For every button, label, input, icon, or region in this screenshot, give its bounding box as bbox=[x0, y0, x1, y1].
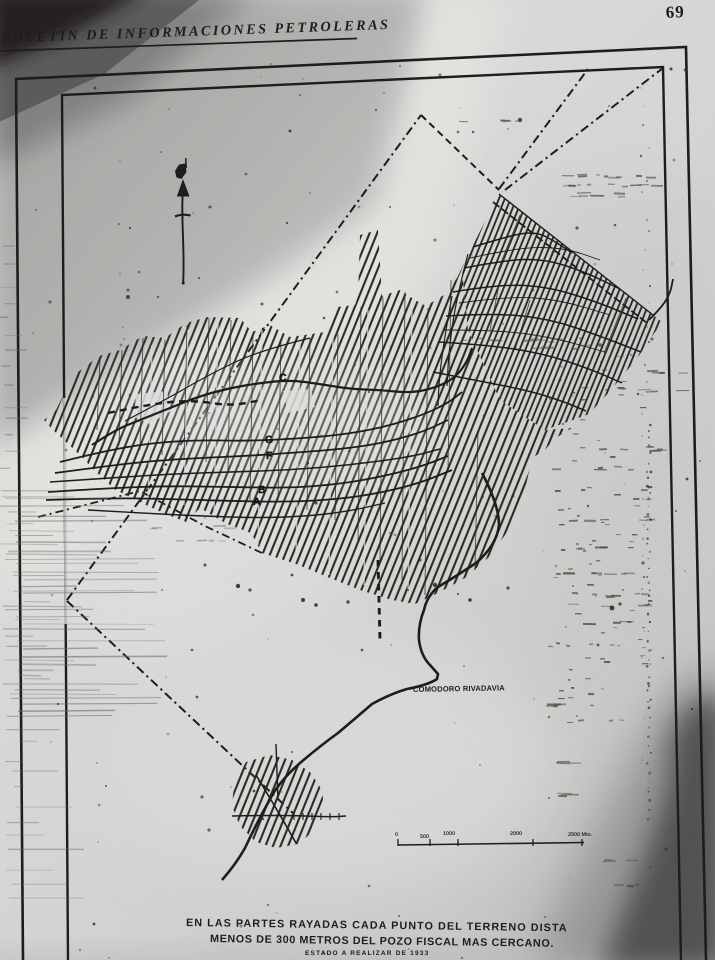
svg-text:1000: 1000 bbox=[443, 831, 455, 837]
svg-text:500: 500 bbox=[420, 834, 429, 840]
svg-text:B: B bbox=[258, 484, 266, 496]
svg-text:COMODORO RIVADAVIA: COMODORO RIVADAVIA bbox=[413, 683, 505, 694]
svg-text:C: C bbox=[279, 372, 287, 384]
svg-text:2500 Mts.: 2500 Mts. bbox=[568, 832, 593, 838]
svg-text:G: G bbox=[265, 434, 273, 446]
svg-text:2000: 2000 bbox=[510, 831, 522, 837]
svg-text:0: 0 bbox=[395, 832, 398, 838]
svg-text:69: 69 bbox=[665, 2, 685, 22]
svg-text:F: F bbox=[266, 450, 273, 462]
svg-text:A: A bbox=[253, 496, 261, 508]
